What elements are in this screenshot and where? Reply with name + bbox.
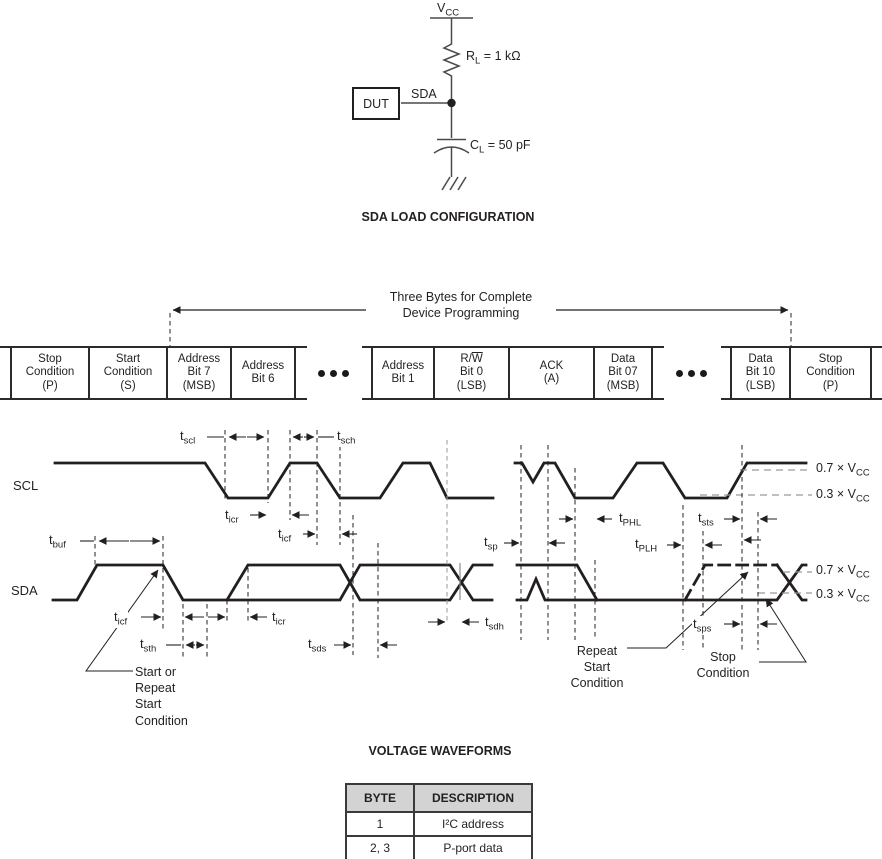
byte-cell-line: Bit 1 [391,373,414,386]
table-row: 2, 3P-port data [346,836,532,859]
byte-cell-line: Condition [26,366,75,379]
byte-cell: DataBit 07(MSB) [595,346,653,400]
timing-label-tscl: tscl [179,428,196,447]
timing-label-tsps: tsps [692,616,712,635]
table-header-row: BYTEDESCRIPTION [346,784,532,812]
byte-cell: StartCondition(S) [90,346,168,400]
waveform-annotation: StopCondition [697,649,750,681]
byte-cell-line: Stop [38,353,62,366]
byte-cell-line: Stop [819,353,843,366]
dot [342,370,349,377]
dut-label: DUT [363,97,389,111]
sda-wire-label: SDA [411,87,437,101]
timing-label-tsch: tsch [336,428,356,447]
byte-row-gap [296,346,371,400]
byte-row-edge [0,346,10,400]
vcc-reference-label: 0.7 × VCC [816,563,870,581]
timing-label-tbuf: tbuf [48,532,67,551]
timing-label-tsdh: tsdh [484,614,505,633]
sda-node-dot [447,99,455,107]
byte-row-gap [653,346,730,400]
dut-box: DUT [352,87,400,120]
vcc-reference-label: 0.7 × VCC [816,461,870,479]
table-cell: 2, 3 [346,836,414,859]
byte-cell-line: ACK [540,360,564,373]
byte-cell-line: Address [242,360,284,373]
vcc-label: VCC [437,1,459,19]
byte-cell-line: (P) [42,380,57,393]
waveform-annotation: Start orRepeatStartCondition [135,664,188,729]
timing-label-ticf: ticf [113,609,128,628]
timing-label-tPHL: tPHL [618,510,642,529]
byte-cell-line: (LSB) [457,380,486,393]
byte-cell: ACK(A) [510,346,595,400]
table-cell: I²C address [414,812,532,836]
table-cell: 1 [346,812,414,836]
byte-cell: StopCondition(P) [10,346,90,400]
byte-cell-line: Address [178,353,220,366]
scl-trace-left [55,463,493,498]
dot [688,370,695,377]
byte-sequence-row: StopCondition(P)StartCondition(S)Address… [0,346,882,400]
byte-cell-line: Bit 0 [460,366,483,379]
byte-row-edge [872,346,882,400]
waveforms-title: VOLTAGE WAVEFORMS [340,744,540,758]
timing-label-tPLH: tPLH [634,536,658,555]
vcc-reference-label: 0.3 × VCC [816,487,870,505]
waveform-annotation: RepeatStartCondition [571,643,624,692]
table-cell: P-port data [414,836,532,859]
timing-label-ticr: ticr [271,609,287,628]
byte-cell-line: (P) [823,380,838,393]
table-row: 1I²C address [346,812,532,836]
dot [676,370,683,377]
dot [700,370,707,377]
sda-repeat-start-dashed [685,565,777,600]
ellipsis-dots-icon [296,346,371,400]
timing-label-tsth: tsth [139,636,157,655]
scl-signal-label: SCL [13,478,38,493]
byte-cell: AddressBit 6 [232,346,296,400]
waveform-traces [53,463,806,600]
measurement-arrows [80,437,777,645]
byte-cell: AddressBit 1 [371,346,435,400]
circuit-graphics [401,18,473,190]
byte-cell-line: R/W [460,353,482,366]
three-bytes-label: Three Bytes for Complete Device Programm… [366,290,556,321]
byte-cell: StopCondition(P) [791,346,872,400]
resistor-symbol [444,41,459,79]
sda-signal-label: SDA [11,583,38,598]
byte-cell: AddressBit 7(MSB) [168,346,232,400]
table-header-cell: DESCRIPTION [414,784,532,812]
cl-value-label: CL = 50 pF [470,138,531,156]
vcc-reference-label: 0.3 × VCC [816,587,870,605]
byte-cell-line: Bit 07 [608,366,637,379]
timing-label-ticr: ticr [224,507,240,526]
ground-symbol [442,177,450,190]
byte-cell-line: Condition [104,366,153,379]
byte-cell-line: (A) [544,373,559,386]
byte-cell-line: Data [611,353,635,366]
byte-cell: DataBit 10(LSB) [730,346,791,400]
byte-cell-line: Data [748,353,772,366]
dot [318,370,325,377]
sda-trace-a [53,565,492,600]
circuit-title: SDA LOAD CONFIGURATION [352,210,544,224]
scl-trace-right [515,463,806,498]
byte-cell-line: (MSB) [607,380,640,393]
timing-label-tsds: tsds [307,636,327,655]
timing-label-tsp: tsp [483,534,499,553]
byte-cell-line: Bit 7 [187,366,210,379]
byte-cell-line: (S) [120,380,135,393]
byte-cell: R/WBit 0(LSB) [435,346,510,400]
rl-value-label: RL = 1 kΩ [466,49,521,67]
dot [330,370,337,377]
timing-label-tsts: tsts [697,510,715,529]
datasheet-figure: VCC RL = 1 kΩ SDA DUT CL = 50 pF SDA LOA… [0,0,882,859]
table-header-cell: BYTE [346,784,414,812]
byte-cell-line: Bit 6 [251,373,274,386]
ellipsis-dots-icon [653,346,730,400]
byte-cell-line: Start [116,353,140,366]
byte-cell-line: (MSB) [183,380,216,393]
byte-cell-line: Condition [806,366,855,379]
byte-cell-line: (LSB) [746,380,775,393]
diagram-graphics [0,0,882,859]
byte-description-table: BYTEDESCRIPTION1I²C address2, 3P-port da… [345,783,533,859]
byte-cell-line: Bit 10 [746,366,775,379]
timing-label-ticf: ticf [277,526,292,545]
byte-cell-line: Address [382,360,424,373]
sda-trace-right-low [517,565,806,600]
